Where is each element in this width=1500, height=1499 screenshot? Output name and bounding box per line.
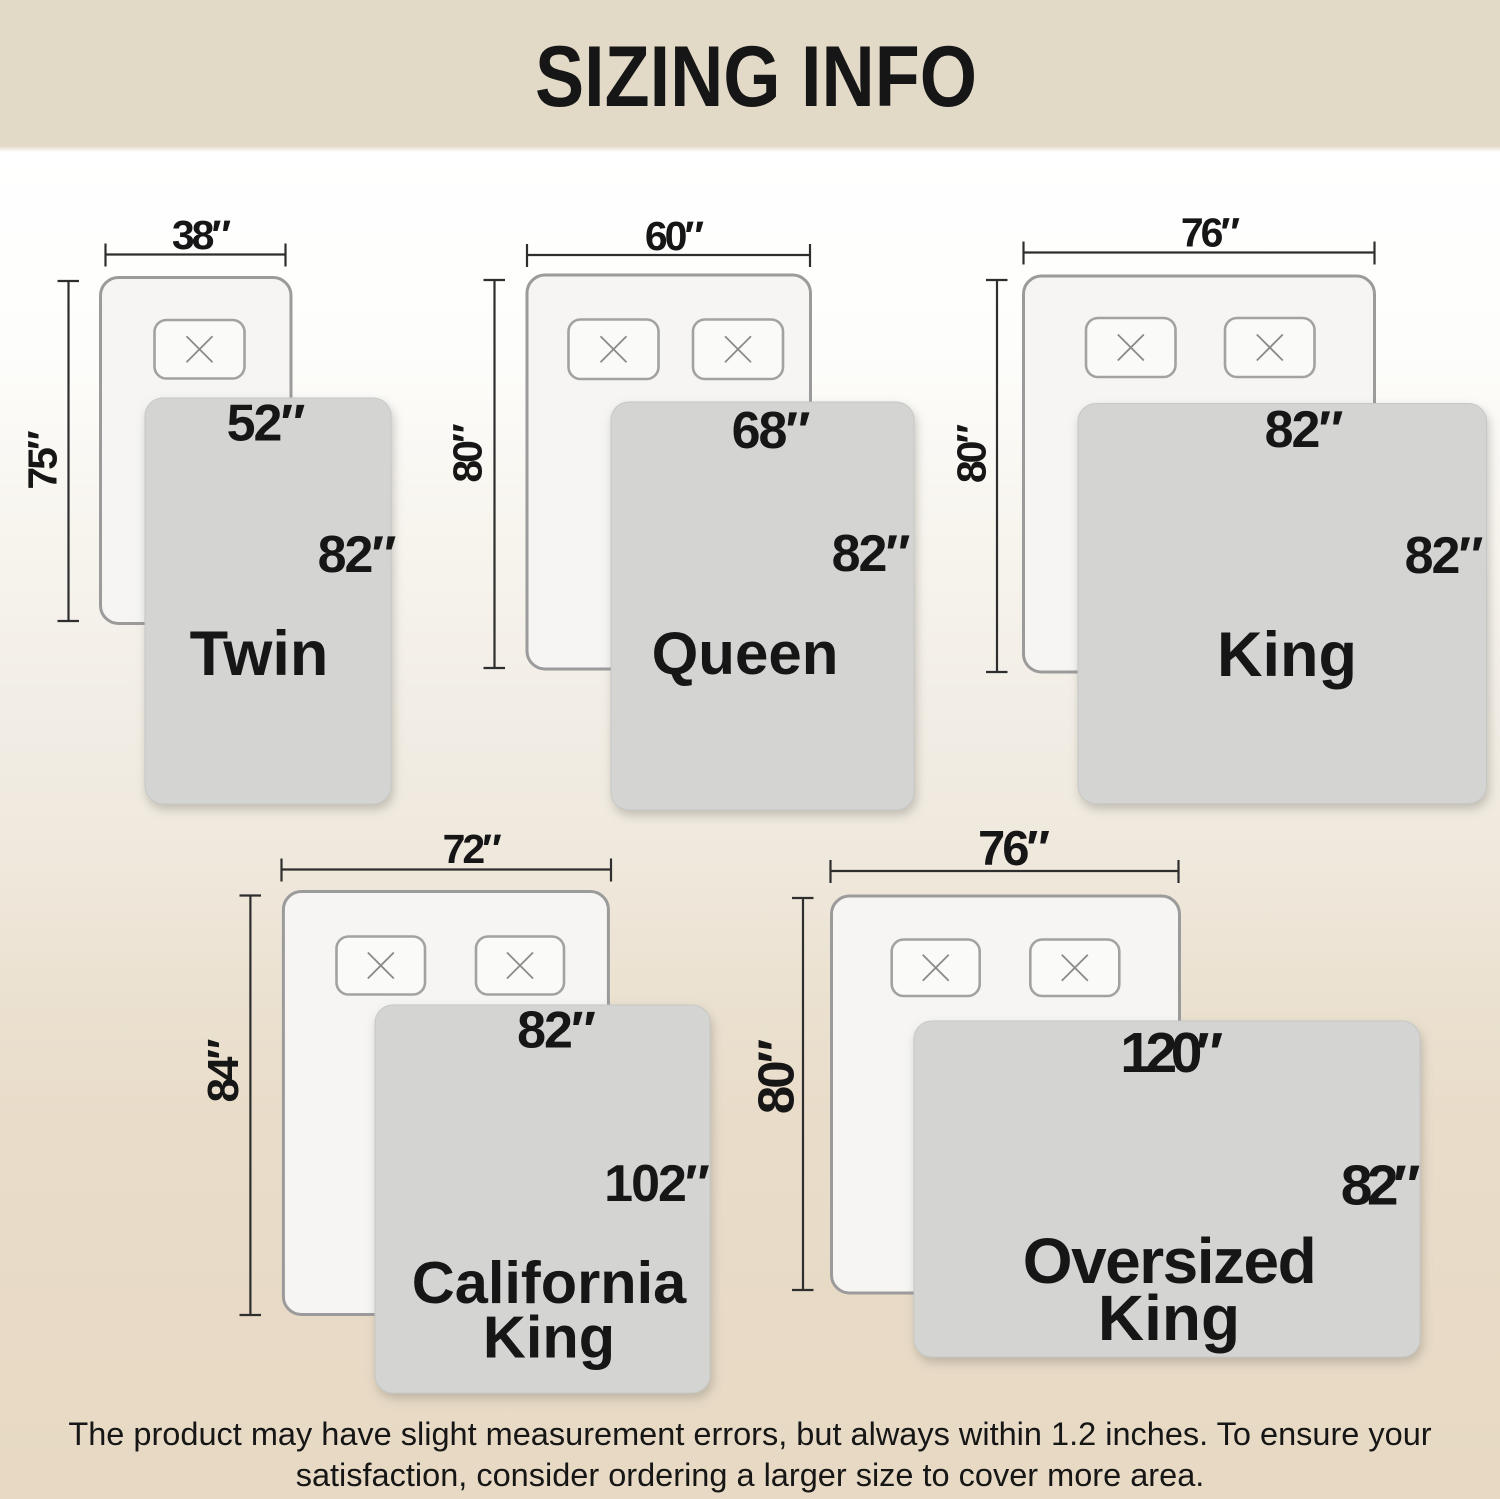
svg-text:82″: 82″ (1405, 527, 1483, 585)
svg-text:King: King (1098, 1282, 1240, 1354)
svg-text:80″: 80″ (748, 1039, 805, 1114)
svg-text:Twin: Twin (190, 619, 329, 689)
svg-text:King: King (483, 1304, 615, 1371)
svg-text:76″: 76″ (1181, 210, 1240, 256)
svg-text:38″: 38″ (172, 212, 231, 258)
svg-text:SIZING INFO: SIZING INFO (535, 29, 977, 125)
svg-text:68″: 68″ (732, 402, 810, 460)
svg-text:82″: 82″ (832, 525, 910, 583)
svg-text:82″: 82″ (1265, 401, 1343, 459)
svg-text:60″: 60″ (645, 213, 704, 259)
svg-text:82″: 82″ (517, 1002, 595, 1060)
svg-text:82″: 82″ (318, 526, 396, 584)
svg-text:80″: 80″ (445, 424, 491, 483)
svg-text:80″: 80″ (949, 425, 995, 484)
svg-text:King: King (1217, 620, 1357, 690)
svg-text:84″: 84″ (199, 1039, 248, 1103)
svg-text:102″: 102″ (604, 1155, 709, 1213)
svg-text:82″: 82″ (1341, 1154, 1420, 1218)
svg-text:75″: 75″ (20, 431, 66, 490)
svg-text:satisfaction, consider orderin: satisfaction, consider ordering a larger… (296, 1457, 1205, 1493)
svg-text:76″: 76″ (978, 822, 1050, 876)
svg-text:The product may have slight me: The product may have slight measurement … (68, 1416, 1431, 1452)
svg-text:120″: 120″ (1120, 1021, 1223, 1085)
svg-text:52″: 52″ (227, 395, 305, 453)
svg-text:Queen: Queen (652, 620, 839, 687)
svg-text:72″: 72″ (443, 826, 502, 872)
